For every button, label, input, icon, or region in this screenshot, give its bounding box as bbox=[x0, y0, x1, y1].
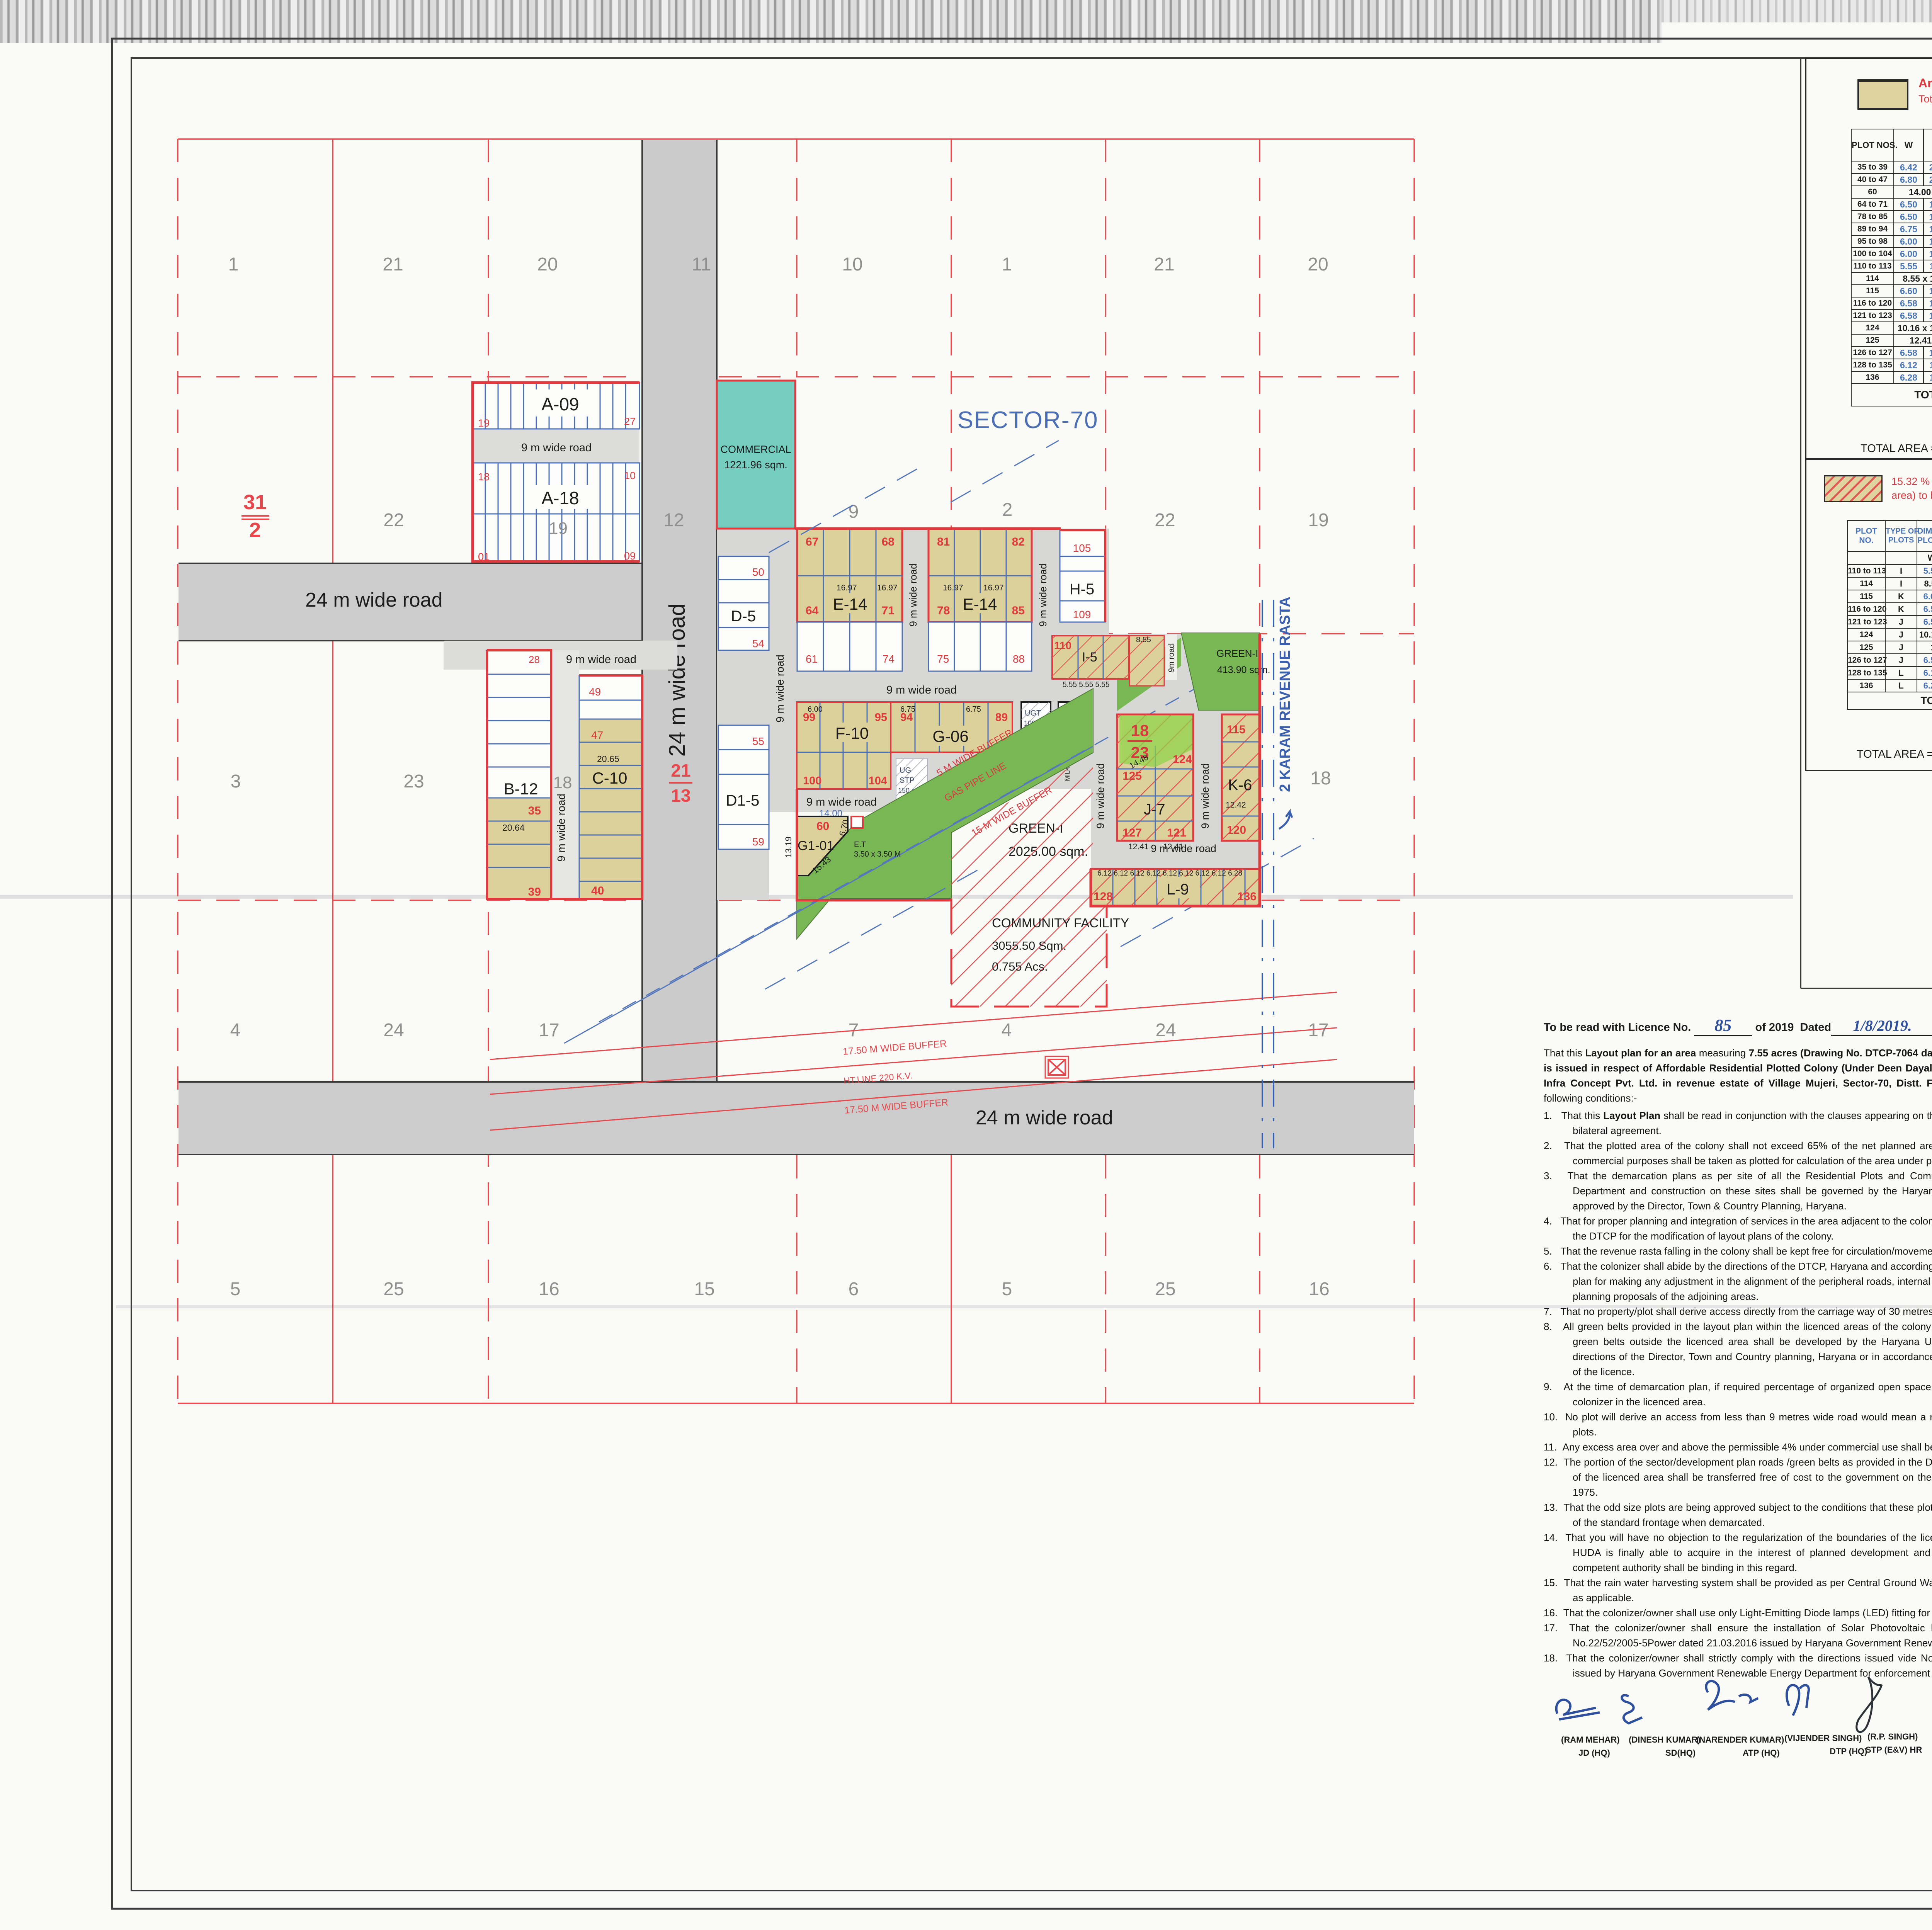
svg-text:UG: UG bbox=[900, 766, 911, 775]
svg-text:20: 20 bbox=[537, 254, 558, 275]
svg-text:54: 54 bbox=[752, 638, 764, 650]
svg-text:120: 120 bbox=[1227, 824, 1246, 837]
svg-text:95: 95 bbox=[875, 711, 887, 724]
svg-text:81: 81 bbox=[937, 536, 950, 548]
svg-text:25: 25 bbox=[1155, 1279, 1175, 1299]
svg-text:19: 19 bbox=[549, 519, 568, 538]
svg-text:128: 128 bbox=[1094, 890, 1113, 903]
svg-text:E-14: E-14 bbox=[833, 595, 867, 613]
svg-text:A-09: A-09 bbox=[541, 394, 579, 414]
svg-text:121: 121 bbox=[1167, 826, 1186, 839]
svg-text:16.97: 16.97 bbox=[943, 583, 963, 592]
svg-text:I-5: I-5 bbox=[1082, 650, 1097, 665]
svg-text:24: 24 bbox=[1155, 1020, 1176, 1041]
svg-text:124: 124 bbox=[1173, 753, 1192, 766]
svg-text:16: 16 bbox=[1309, 1279, 1329, 1299]
svg-text:21: 21 bbox=[1154, 254, 1174, 275]
svg-text:20: 20 bbox=[1308, 254, 1328, 275]
svg-text:F-10: F-10 bbox=[835, 724, 869, 742]
svg-text:16.97: 16.97 bbox=[837, 583, 857, 592]
svg-text:13.19: 13.19 bbox=[784, 837, 793, 858]
svg-text:24: 24 bbox=[383, 1020, 404, 1041]
svg-text:5: 5 bbox=[230, 1279, 241, 1299]
svg-text:75: 75 bbox=[937, 653, 949, 665]
svg-text:3055.50 Sqm.: 3055.50 Sqm. bbox=[992, 939, 1066, 952]
svg-text:1: 1 bbox=[228, 254, 239, 275]
svg-text:24 m wide road: 24 m wide road bbox=[665, 604, 690, 757]
svg-text:47: 47 bbox=[591, 729, 603, 741]
svg-text:9 m wide road: 9 m wide road bbox=[1199, 763, 1211, 829]
svg-text:D1-5: D1-5 bbox=[726, 792, 760, 809]
svg-text:9 m wide road: 9 m wide road bbox=[806, 796, 877, 808]
svg-text:85: 85 bbox=[1012, 604, 1025, 617]
svg-text:COMMUNITY FACILITY: COMMUNITY FACILITY bbox=[992, 916, 1129, 930]
svg-text:12: 12 bbox=[663, 510, 684, 531]
svg-text:16.97: 16.97 bbox=[983, 583, 1004, 592]
svg-text:109: 109 bbox=[1073, 609, 1091, 621]
svg-text:5.55 5.55 5.55: 5.55 5.55 5.55 bbox=[1063, 681, 1110, 689]
svg-text:3: 3 bbox=[231, 771, 241, 792]
svg-text:21: 21 bbox=[383, 254, 403, 275]
svg-text:G1-01: G1-01 bbox=[798, 838, 834, 853]
svg-text:4: 4 bbox=[230, 1020, 241, 1041]
svg-text:16: 16 bbox=[539, 1279, 559, 1299]
svg-text:22: 22 bbox=[383, 510, 404, 531]
svg-text:C-10: C-10 bbox=[592, 769, 627, 787]
svg-text:6.75: 6.75 bbox=[900, 705, 915, 714]
svg-text:89: 89 bbox=[995, 711, 1008, 724]
svg-text:0.755 Acs.: 0.755 Acs. bbox=[992, 960, 1048, 973]
svg-text:18: 18 bbox=[553, 773, 572, 792]
svg-text:55: 55 bbox=[752, 735, 764, 747]
svg-text:10: 10 bbox=[624, 470, 636, 481]
svg-text:28: 28 bbox=[529, 654, 540, 665]
svg-text:18: 18 bbox=[1310, 768, 1331, 789]
svg-text:2: 2 bbox=[249, 519, 261, 542]
svg-text:100: 100 bbox=[803, 775, 821, 787]
svg-text:H-5: H-5 bbox=[1070, 581, 1094, 598]
svg-text:D-5: D-5 bbox=[731, 608, 756, 625]
svg-text:49: 49 bbox=[589, 686, 601, 698]
svg-text:12.42: 12.42 bbox=[1226, 801, 1246, 809]
svg-text:27: 27 bbox=[624, 416, 636, 427]
svg-text:19: 19 bbox=[1308, 510, 1328, 531]
svg-text:61: 61 bbox=[806, 653, 818, 665]
svg-text:J-7: J-7 bbox=[1144, 801, 1165, 818]
svg-text:L-9: L-9 bbox=[1167, 881, 1189, 898]
svg-text:6.00: 6.00 bbox=[808, 705, 823, 714]
svg-text:24 m wide road: 24 m wide road bbox=[976, 1107, 1113, 1129]
svg-text:E.T: E.T bbox=[854, 840, 866, 849]
svg-text:60: 60 bbox=[816, 820, 829, 833]
svg-text:5: 5 bbox=[1002, 1279, 1012, 1299]
svg-text:23: 23 bbox=[403, 771, 424, 792]
svg-text:2 KARAM REVENUE RASTA: 2 KARAM REVENUE RASTA bbox=[1277, 597, 1293, 792]
svg-text:1: 1 bbox=[1002, 254, 1012, 275]
svg-text:9 m wide road: 9 m wide road bbox=[1151, 843, 1216, 854]
svg-text:40: 40 bbox=[591, 884, 604, 897]
svg-text:COMMERCIAL: COMMERCIAL bbox=[720, 444, 791, 455]
svg-text:82: 82 bbox=[1012, 536, 1025, 548]
svg-text:21: 21 bbox=[671, 760, 690, 781]
svg-text:22: 22 bbox=[1155, 510, 1175, 531]
svg-text:78: 78 bbox=[937, 604, 950, 617]
svg-text:127: 127 bbox=[1122, 826, 1142, 839]
svg-text:20.64: 20.64 bbox=[502, 823, 525, 833]
svg-text:2: 2 bbox=[1002, 500, 1013, 520]
svg-text:17.50 M WIDE BUFFER: 17.50 M WIDE BUFFER bbox=[842, 1038, 947, 1057]
svg-text:6.12 6.12 6.12 6.12 6.12: 6.12 6.12 6.12 6.12 6.12 6.12 6.12 6.12 … bbox=[1097, 869, 1242, 877]
svg-text:25: 25 bbox=[383, 1279, 404, 1299]
svg-text:6.75: 6.75 bbox=[966, 705, 981, 714]
svg-text:6: 6 bbox=[849, 1279, 859, 1299]
svg-text:18: 18 bbox=[1131, 721, 1149, 740]
svg-text:3.50 x 3.50 M: 3.50 x 3.50 M bbox=[854, 850, 901, 859]
svg-text:88: 88 bbox=[1013, 653, 1025, 665]
svg-text:67: 67 bbox=[806, 536, 818, 548]
svg-text:125: 125 bbox=[1122, 770, 1142, 782]
svg-text:74: 74 bbox=[883, 653, 895, 665]
svg-text:39: 39 bbox=[528, 886, 541, 898]
svg-text:16.97: 16.97 bbox=[877, 583, 898, 592]
svg-text:68: 68 bbox=[882, 536, 895, 548]
svg-text:9m road: 9m road bbox=[1167, 644, 1176, 672]
svg-text:115: 115 bbox=[1227, 723, 1245, 736]
svg-text:9 m wide road: 9 m wide road bbox=[886, 684, 957, 696]
svg-text:9 m wide road: 9 m wide road bbox=[1037, 563, 1049, 626]
svg-text:24 m wide road: 24 m wide road bbox=[305, 589, 443, 611]
svg-text:59: 59 bbox=[752, 836, 764, 848]
svg-text:9 m wide road: 9 m wide road bbox=[566, 653, 636, 666]
svg-text:50: 50 bbox=[752, 566, 764, 578]
svg-text:STP: STP bbox=[900, 776, 915, 785]
svg-text:K-6: K-6 bbox=[1228, 777, 1252, 794]
svg-text:9 m wide road: 9 m wide road bbox=[555, 794, 567, 862]
svg-text:A-18: A-18 bbox=[541, 488, 579, 508]
svg-text:17: 17 bbox=[539, 1020, 559, 1041]
svg-text:9: 9 bbox=[849, 502, 859, 522]
svg-text:15: 15 bbox=[694, 1279, 714, 1299]
svg-text:9 m wide road: 9 m wide road bbox=[774, 655, 786, 723]
svg-text:136: 136 bbox=[1237, 890, 1257, 903]
svg-text:31: 31 bbox=[243, 491, 267, 514]
svg-text:UGT: UGT bbox=[1025, 709, 1041, 718]
svg-text:110: 110 bbox=[1054, 639, 1071, 651]
svg-text:13: 13 bbox=[671, 786, 690, 806]
svg-text:E-14: E-14 bbox=[963, 595, 997, 613]
svg-text:11: 11 bbox=[692, 254, 711, 275]
svg-text:18: 18 bbox=[478, 471, 490, 483]
svg-text:1221.96 sqm.: 1221.96 sqm. bbox=[724, 459, 787, 471]
svg-text:9 m wide road: 9 m wide road bbox=[521, 442, 592, 454]
svg-text:4: 4 bbox=[1002, 1020, 1012, 1041]
svg-text:8.55: 8.55 bbox=[1136, 636, 1151, 644]
svg-text:9 m wide road: 9 m wide road bbox=[907, 563, 919, 626]
svg-text:G-06: G-06 bbox=[932, 727, 968, 745]
svg-text:B-12: B-12 bbox=[504, 780, 538, 798]
svg-text:GREEN-II: GREEN-II bbox=[1216, 648, 1261, 659]
svg-text:105: 105 bbox=[1073, 542, 1091, 554]
svg-text:SECTOR-70: SECTOR-70 bbox=[957, 407, 1099, 434]
svg-text:9 m wide road: 9 m wide road bbox=[1095, 763, 1106, 829]
svg-text:10: 10 bbox=[842, 254, 862, 275]
svg-text:104: 104 bbox=[869, 775, 887, 787]
svg-text:12.41: 12.41 bbox=[1128, 842, 1149, 851]
svg-text:71: 71 bbox=[882, 604, 895, 617]
svg-text:20.65: 20.65 bbox=[597, 754, 619, 764]
svg-text:19: 19 bbox=[478, 417, 490, 429]
svg-text:35: 35 bbox=[528, 804, 541, 817]
svg-text:64: 64 bbox=[806, 604, 819, 617]
